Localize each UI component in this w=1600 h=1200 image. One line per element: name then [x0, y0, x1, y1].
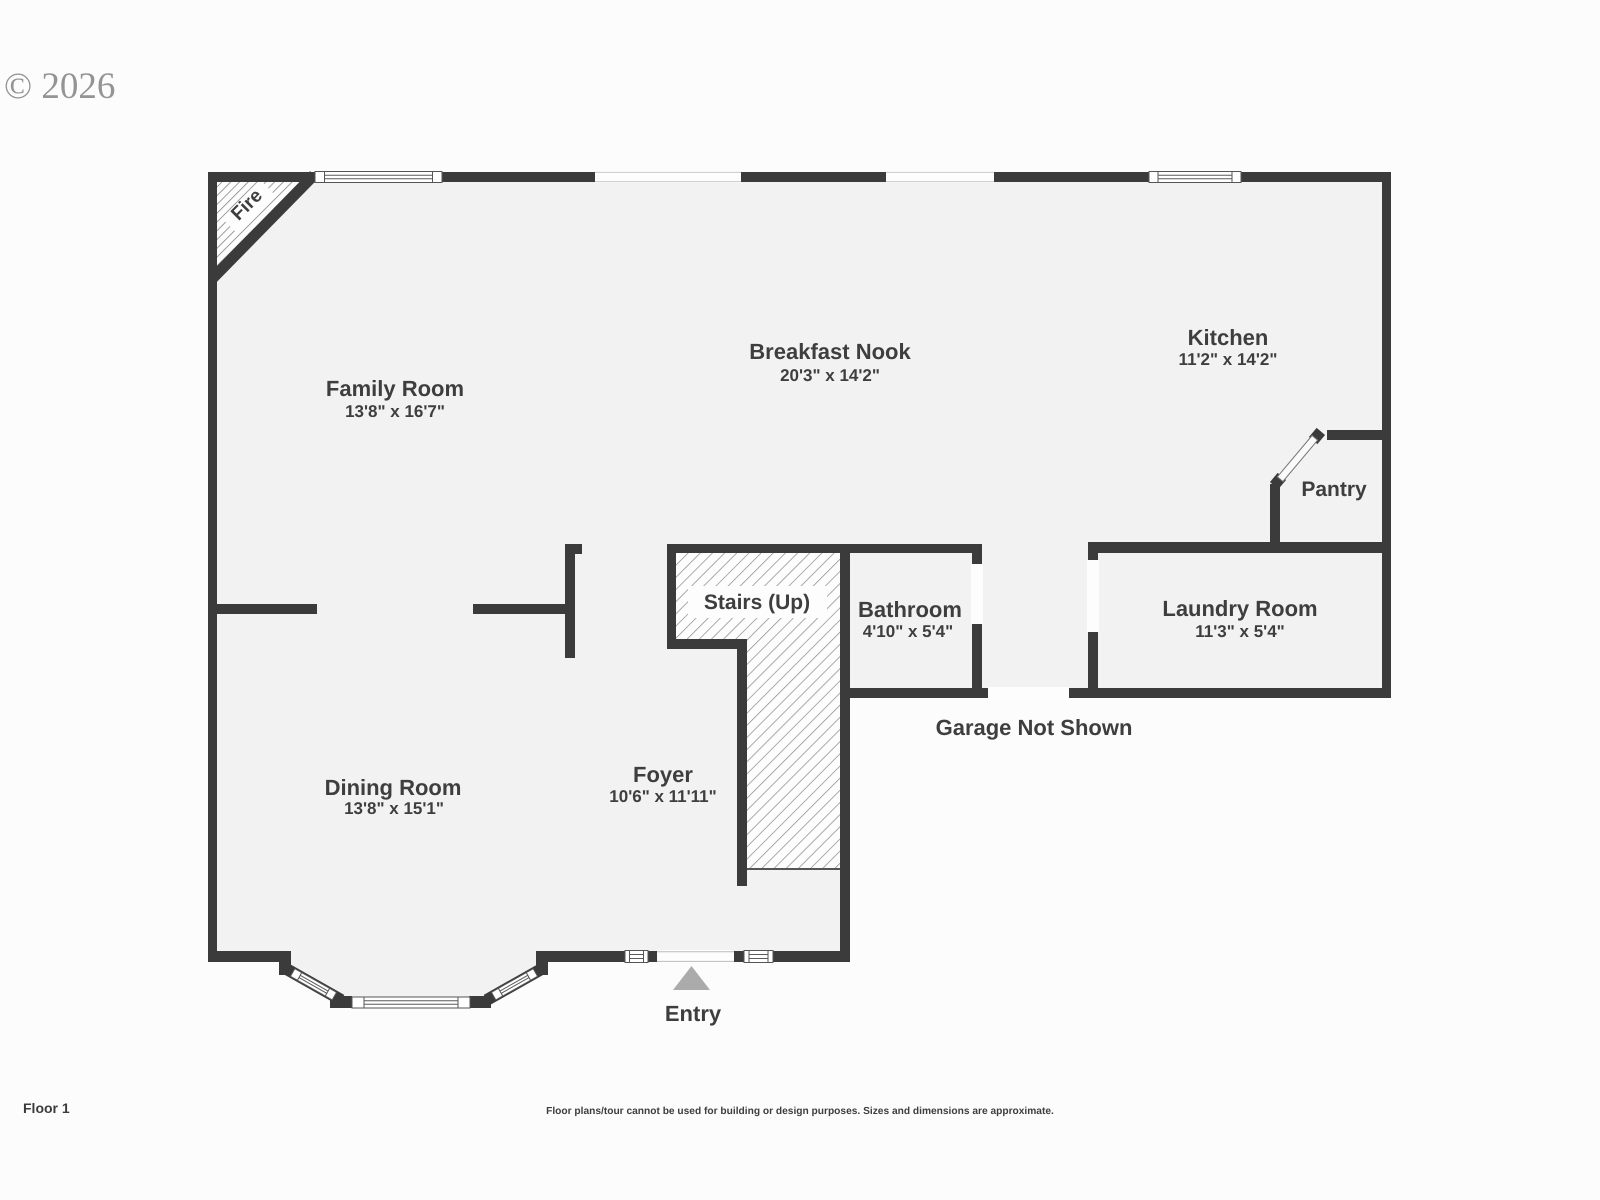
- svg-text:© 2026: © 2026: [4, 66, 115, 107]
- svg-text:11'3" x 5'4": 11'3" x 5'4": [1195, 622, 1284, 641]
- svg-text:Floor plans/tour cannot be use: Floor plans/tour cannot be used for buil…: [546, 1106, 1054, 1117]
- svg-text:11'2" x 14'2": 11'2" x 14'2": [1179, 350, 1278, 369]
- svg-text:Entry: Entry: [665, 1001, 722, 1026]
- svg-text:Garage Not Shown: Garage Not Shown: [936, 715, 1133, 740]
- svg-text:Breakfast Nook: Breakfast Nook: [749, 339, 911, 364]
- svg-text:10'6" x 11'11": 10'6" x 11'11": [609, 787, 716, 806]
- svg-text:Family Room: Family Room: [326, 376, 464, 401]
- svg-text:13'8" x 16'7": 13'8" x 16'7": [345, 402, 445, 421]
- svg-text:20'3" x 14'2": 20'3" x 14'2": [780, 366, 880, 385]
- svg-text:Foyer: Foyer: [633, 762, 693, 787]
- svg-text:Floor 1: Floor 1: [23, 1100, 70, 1116]
- svg-text:Stairs (Up): Stairs (Up): [704, 591, 810, 614]
- svg-text:Laundry Room: Laundry Room: [1162, 596, 1317, 621]
- svg-text:13'8" x 15'1": 13'8" x 15'1": [344, 799, 444, 818]
- svg-text:Dining Room: Dining Room: [325, 775, 462, 800]
- svg-text:4'10" x 5'4": 4'10" x 5'4": [863, 622, 953, 641]
- svg-text:Bathroom: Bathroom: [858, 597, 962, 622]
- svg-text:Kitchen: Kitchen: [1188, 325, 1269, 350]
- svg-text:Pantry: Pantry: [1301, 478, 1367, 501]
